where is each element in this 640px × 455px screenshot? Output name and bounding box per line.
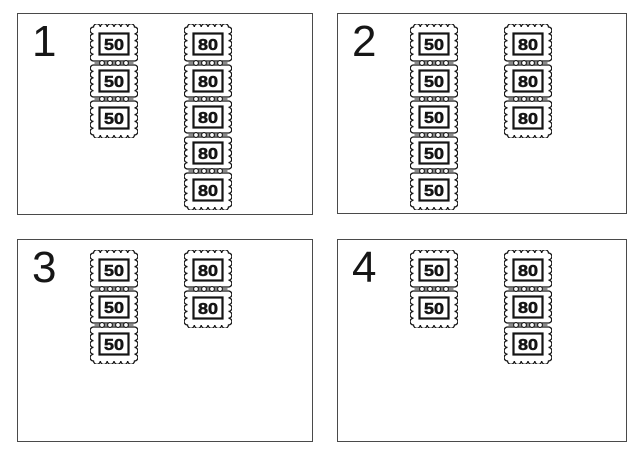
stamp-50: 50 [410, 173, 458, 210]
stamp-strip-80: 8080 [184, 250, 232, 333]
stamp-value: 50 [104, 74, 124, 91]
stamp-value: 80 [518, 300, 538, 317]
stamp-strip-50: 5050 [410, 250, 458, 333]
stamp-50: 50 [410, 250, 458, 287]
stamp-80: 80 [504, 291, 551, 323]
stamp-80: 80 [184, 173, 232, 210]
stamp-value: 80 [518, 37, 538, 54]
stamp-strip-svg: 8080 [184, 250, 232, 328]
panel-number: 2 [352, 18, 376, 66]
stamp-50: 50 [90, 24, 138, 61]
stamp-50: 50 [90, 291, 137, 323]
stamp-value: 50 [104, 111, 124, 128]
stamp-value: 80 [518, 263, 538, 280]
stamp-50: 50 [90, 327, 138, 364]
stamp-50: 50 [410, 291, 458, 328]
stamp-value: 50 [104, 263, 124, 280]
worksheet: 1505050808080808025050505050808080350505… [0, 0, 640, 455]
stamp-value: 80 [198, 301, 218, 318]
stamp-value: 50 [104, 37, 124, 54]
panel-number: 3 [32, 244, 56, 292]
stamp-strip-80: 808080 [504, 250, 552, 369]
stamp-value: 80 [518, 337, 538, 354]
stamp-50: 50 [410, 101, 457, 133]
stamp-50: 50 [90, 250, 138, 287]
stamp-50: 50 [410, 24, 458, 61]
stamp-value: 50 [424, 301, 444, 318]
stamp-value: 50 [424, 183, 444, 200]
stamp-value: 80 [198, 37, 218, 54]
panel-number: 4 [352, 244, 376, 292]
stamp-strip-svg: 8080808080 [184, 24, 232, 210]
stamp-strip-50: 505050 [90, 24, 138, 143]
stamp-80: 80 [504, 24, 552, 61]
stamp-80: 80 [184, 250, 232, 287]
stamp-value: 80 [198, 110, 218, 127]
stamp-80: 80 [184, 24, 232, 61]
stamp-value: 50 [424, 74, 444, 91]
stamp-value: 50 [424, 263, 444, 280]
stamp-value: 50 [104, 337, 124, 354]
stamp-value: 80 [198, 183, 218, 200]
stamp-strip-svg: 5050505050 [410, 24, 458, 210]
stamp-80: 80 [504, 101, 552, 138]
stamp-value: 50 [424, 146, 444, 163]
stamp-strip-svg: 808080 [504, 250, 552, 364]
stamp-strip-50: 505050 [90, 250, 138, 369]
stamp-value: 80 [198, 146, 218, 163]
panel-4: 45050808080 [337, 239, 627, 442]
stamp-80: 80 [184, 65, 231, 97]
stamp-value: 80 [198, 263, 218, 280]
stamp-80: 80 [184, 291, 232, 328]
stamp-value: 80 [198, 74, 218, 91]
stamp-50: 50 [410, 65, 457, 97]
stamp-value: 50 [424, 37, 444, 54]
stamp-value: 80 [518, 111, 538, 128]
stamp-value: 50 [424, 110, 444, 127]
stamp-strip-80: 8080808080 [184, 24, 232, 215]
stamp-80: 80 [184, 137, 231, 169]
stamp-50: 50 [90, 65, 137, 97]
stamp-strip-svg: 808080 [504, 24, 552, 138]
panel-2: 25050505050808080 [337, 13, 627, 214]
panel-number: 1 [32, 18, 56, 66]
stamp-value: 50 [104, 300, 124, 317]
stamp-80: 80 [504, 327, 552, 364]
stamp-value: 80 [518, 74, 538, 91]
stamp-50: 50 [410, 137, 457, 169]
panel-1: 15050508080808080 [17, 13, 313, 215]
stamp-strip-svg: 505050 [90, 250, 138, 364]
stamp-strip-svg: 505050 [90, 24, 138, 138]
stamp-strip-svg: 5050 [410, 250, 458, 328]
stamp-strip-50: 5050505050 [410, 24, 458, 215]
panel-3: 35050508080 [17, 239, 313, 442]
stamp-80: 80 [504, 65, 551, 97]
stamp-80: 80 [184, 101, 231, 133]
stamp-strip-80: 808080 [504, 24, 552, 143]
stamp-50: 50 [90, 101, 138, 138]
stamp-80: 80 [504, 250, 552, 287]
